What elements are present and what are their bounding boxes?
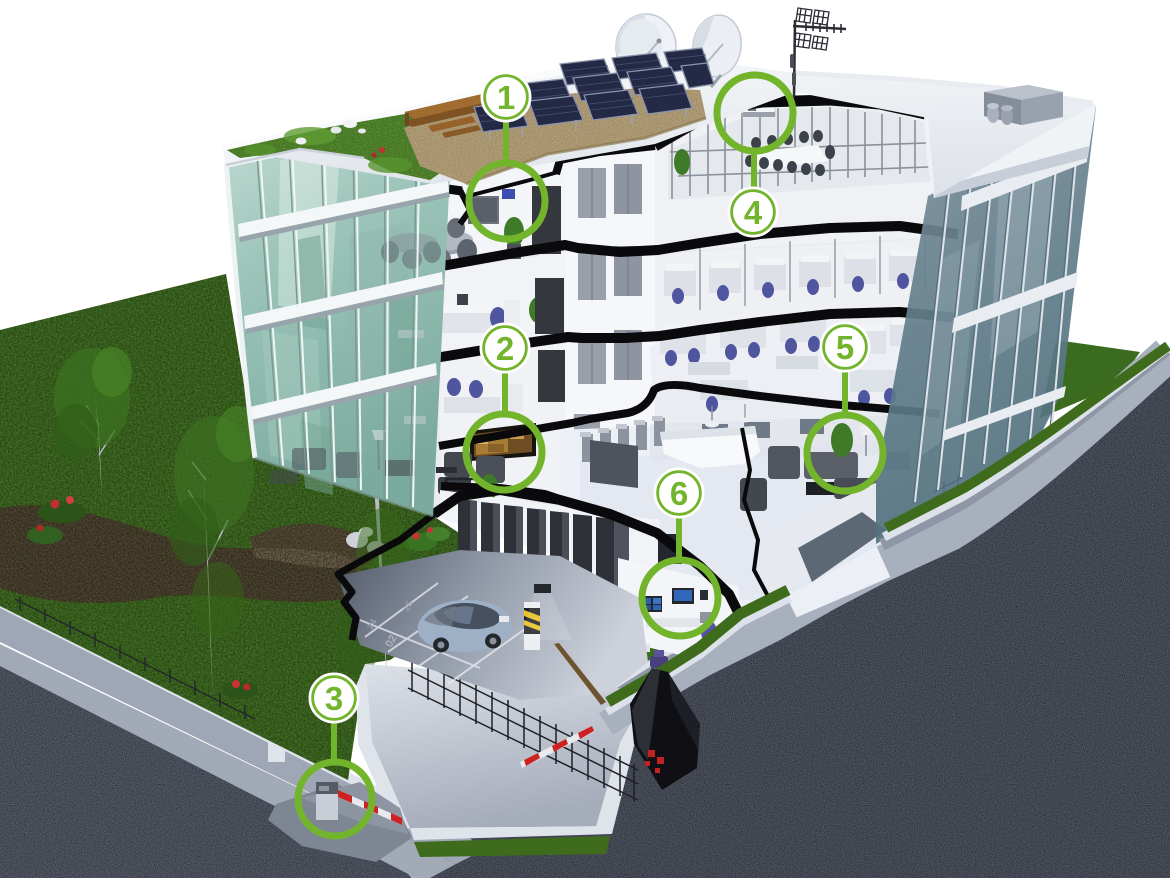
svg-text:2: 2	[496, 330, 514, 367]
svg-text:5: 5	[836, 329, 854, 366]
svg-text:6: 6	[670, 475, 688, 512]
svg-text:1: 1	[497, 79, 515, 116]
svg-text:3: 3	[325, 680, 343, 717]
svg-text:4: 4	[744, 194, 763, 231]
